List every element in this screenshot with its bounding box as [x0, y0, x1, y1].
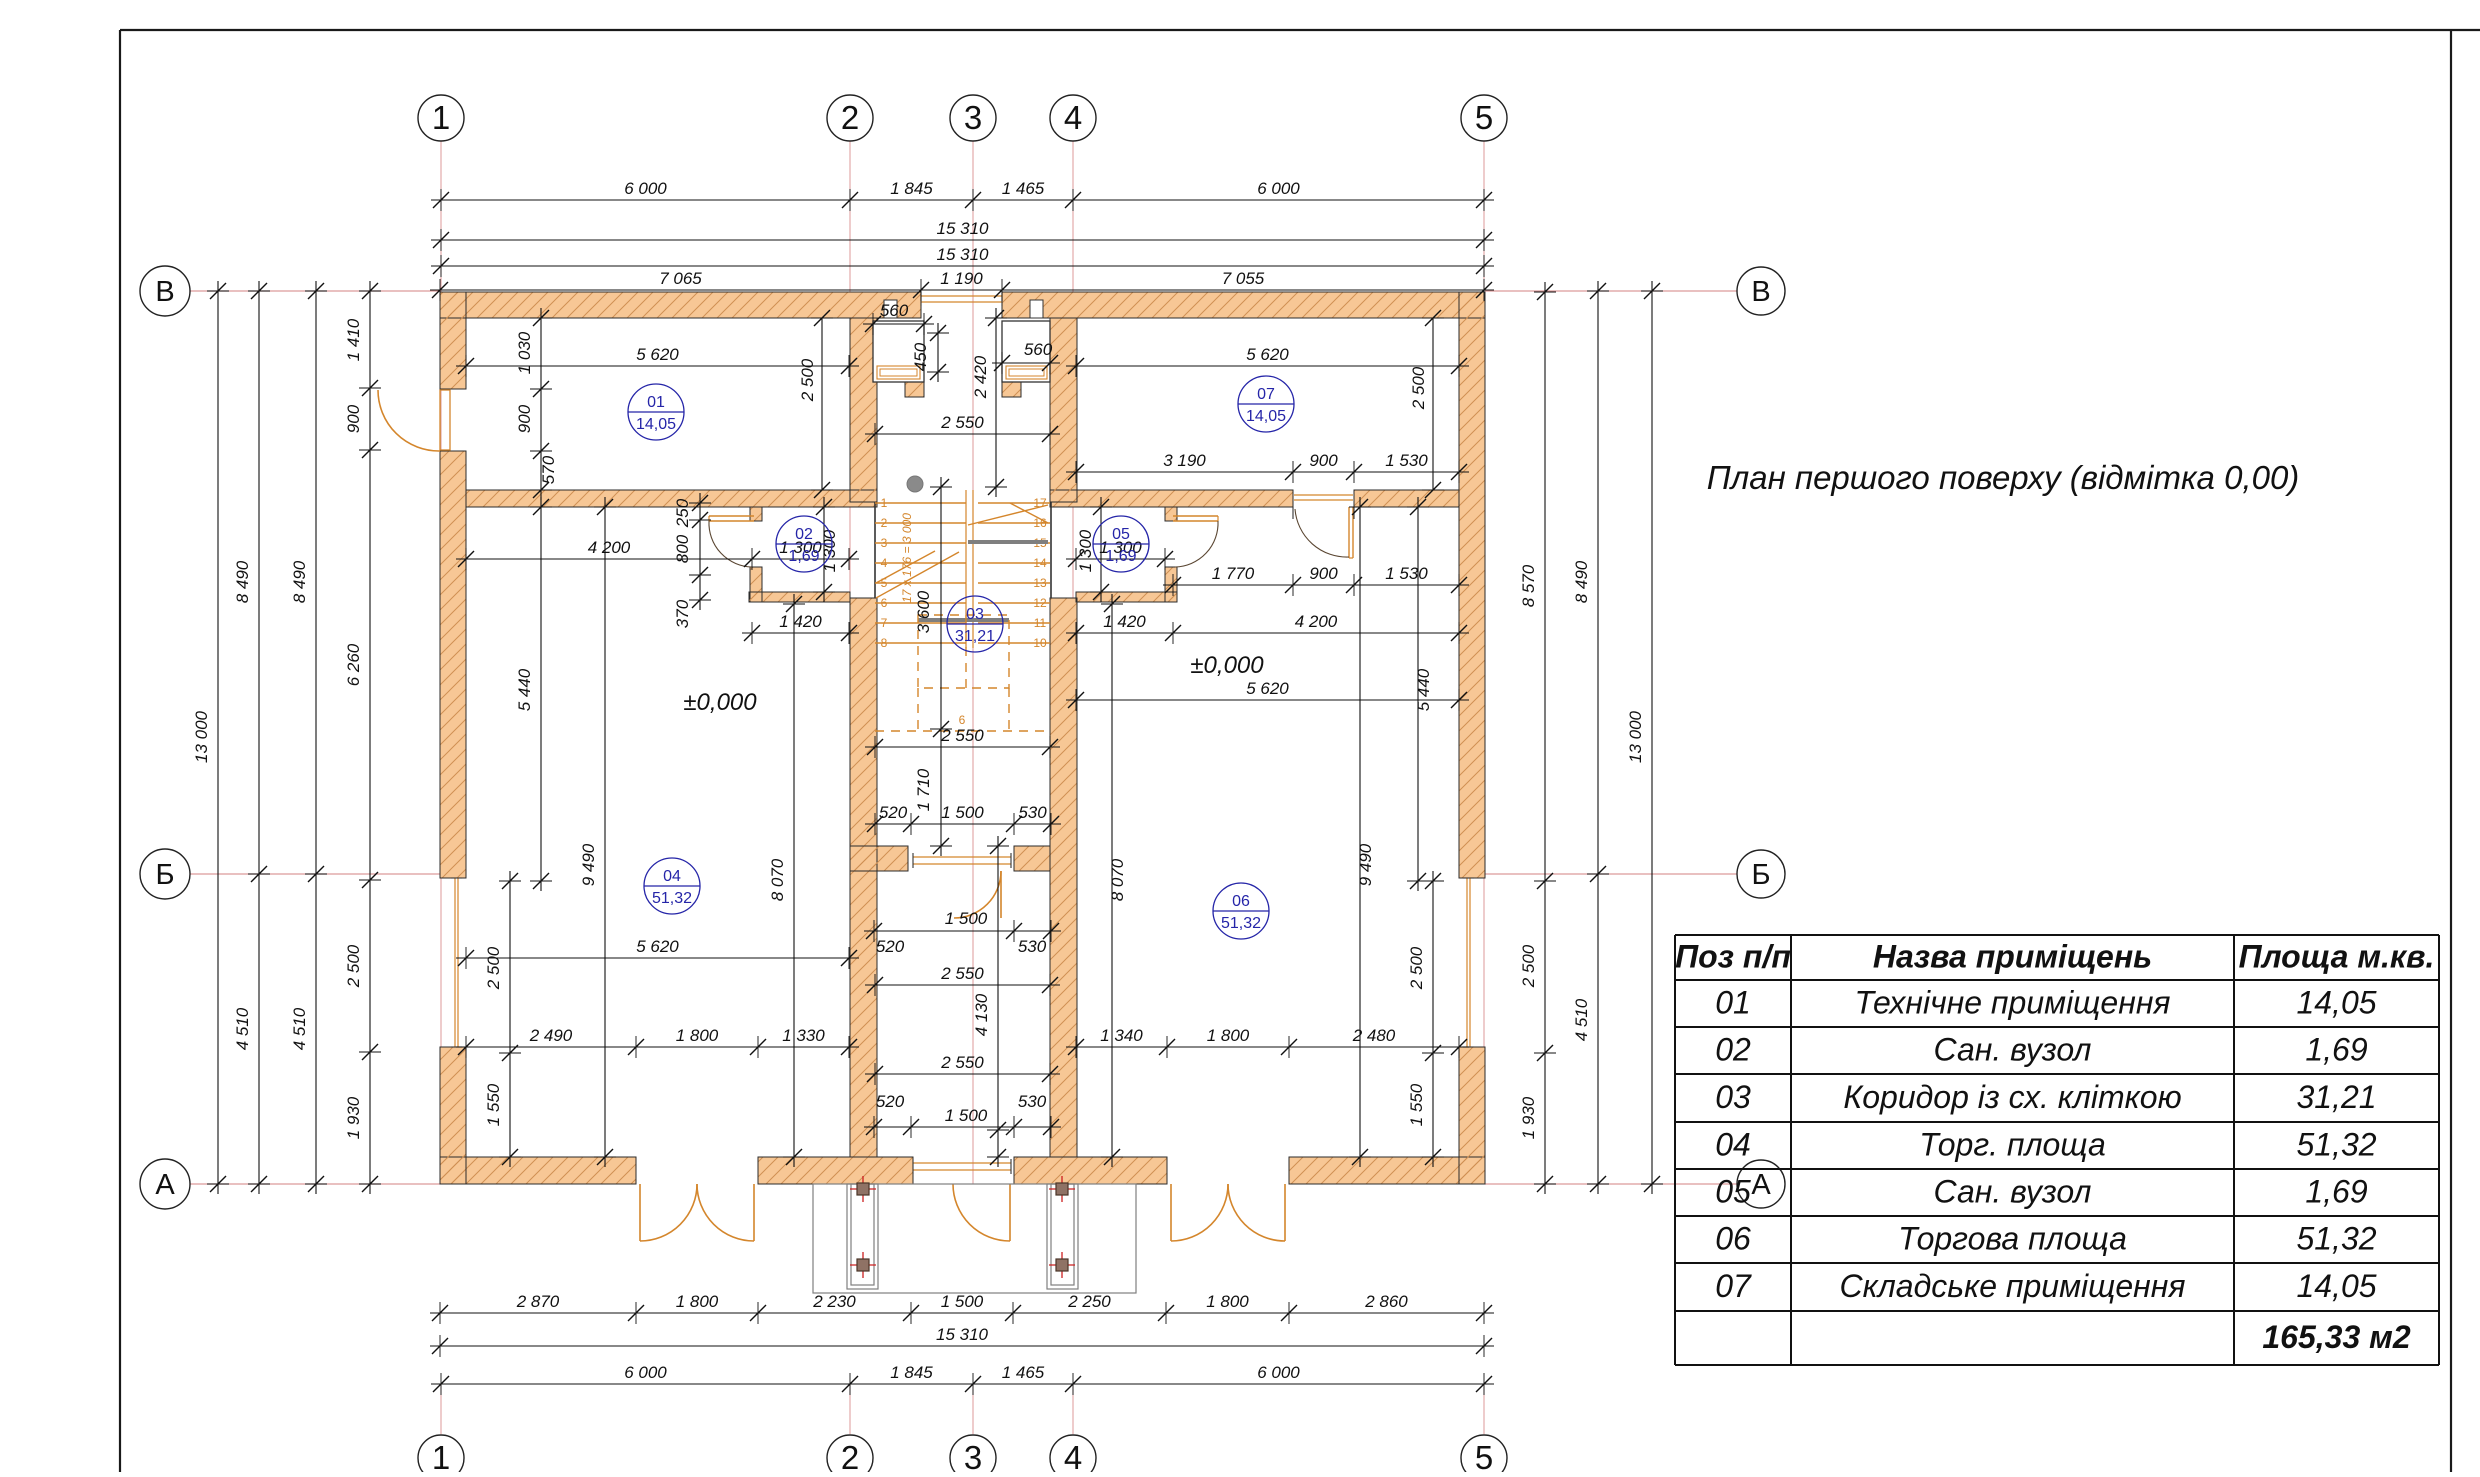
- svg-text:2: 2: [881, 516, 888, 530]
- svg-text:02: 02: [1715, 1032, 1751, 1068]
- svg-text:2 870: 2 870: [516, 1292, 560, 1311]
- svg-text:8 070: 8 070: [1108, 858, 1127, 901]
- svg-text:Торгова площа: Торгова площа: [1898, 1221, 2127, 1257]
- svg-text:51,32: 51,32: [652, 890, 692, 907]
- svg-text:01: 01: [647, 394, 665, 411]
- svg-text:4: 4: [1064, 99, 1082, 136]
- svg-text:1 500: 1 500: [945, 1106, 988, 1125]
- svg-text:6 000: 6 000: [624, 179, 667, 198]
- svg-text:1: 1: [432, 1439, 450, 1472]
- svg-text:8 490: 8 490: [233, 560, 252, 603]
- svg-text:1 465: 1 465: [1002, 179, 1045, 198]
- svg-text:2 500: 2 500: [344, 944, 363, 988]
- svg-text:1 330: 1 330: [782, 1026, 825, 1045]
- svg-text:13 000: 13 000: [192, 710, 211, 763]
- svg-text:Технічне приміщення: Технічне приміщення: [1854, 985, 2170, 1021]
- svg-text:560: 560: [880, 301, 909, 320]
- svg-text:2 250: 2 250: [1067, 1292, 1111, 1311]
- svg-text:1 930: 1 930: [1519, 1096, 1538, 1139]
- svg-text:1 300: 1 300: [1076, 529, 1095, 572]
- svg-text:В: В: [1751, 276, 1770, 308]
- svg-text:15 310: 15 310: [937, 245, 990, 264]
- svg-text:1 420: 1 420: [1103, 612, 1146, 631]
- svg-text:2 500: 2 500: [1409, 366, 1428, 410]
- svg-text:14,05: 14,05: [636, 416, 676, 433]
- svg-text:1 500: 1 500: [941, 1292, 984, 1311]
- svg-text:1 710: 1 710: [914, 768, 933, 811]
- svg-text:1 800: 1 800: [1206, 1292, 1249, 1311]
- svg-text:1 930: 1 930: [344, 1096, 363, 1139]
- svg-text:2 550: 2 550: [940, 964, 984, 983]
- svg-text:±0,000: ±0,000: [683, 689, 757, 716]
- svg-text:165,33 м2: 165,33 м2: [2262, 1319, 2410, 1355]
- svg-text:1 800: 1 800: [1207, 1026, 1250, 1045]
- svg-text:31,21: 31,21: [955, 628, 995, 645]
- svg-text:14,05: 14,05: [1246, 408, 1286, 425]
- svg-text:250: 250: [673, 498, 692, 528]
- svg-text:1,69: 1,69: [2305, 1174, 2367, 1210]
- svg-text:450: 450: [911, 342, 930, 371]
- svg-text:13: 13: [1033, 576, 1047, 590]
- svg-text:Коридор із сх. кліткою: Коридор із сх. кліткою: [1843, 1079, 2181, 1115]
- svg-text:1 550: 1 550: [484, 1083, 503, 1126]
- svg-text:2 480: 2 480: [1352, 1026, 1396, 1045]
- svg-text:Торг. площа: Торг. площа: [1919, 1127, 2105, 1163]
- svg-text:530: 530: [1018, 803, 1047, 822]
- svg-text:План першого поверху (відмітка: План першого поверху (відмітка 0,00): [1707, 459, 2300, 496]
- svg-text:51,32: 51,32: [2296, 1127, 2376, 1163]
- svg-text:5 620: 5 620: [1246, 345, 1289, 364]
- svg-text:13 000: 13 000: [1626, 710, 1645, 763]
- svg-text:1,69: 1,69: [788, 548, 819, 565]
- svg-text:5: 5: [1475, 99, 1493, 136]
- svg-text:17 x 176 = 3 000: 17 x 176 = 3 000: [900, 513, 914, 603]
- svg-text:11: 11: [1034, 616, 1047, 630]
- svg-text:570: 570: [539, 455, 558, 484]
- svg-text:Площа м.кв.: Площа м.кв.: [2239, 939, 2435, 975]
- svg-text:9 490: 9 490: [1356, 843, 1375, 886]
- svg-text:03: 03: [1715, 1079, 1751, 1115]
- svg-text:1 800: 1 800: [676, 1292, 719, 1311]
- svg-text:2: 2: [841, 99, 859, 136]
- svg-text:6 000: 6 000: [1257, 179, 1300, 198]
- svg-text:530: 530: [1018, 1092, 1047, 1111]
- svg-text:800: 800: [673, 534, 692, 563]
- svg-text:Сан. вузол: Сан. вузол: [1934, 1032, 2092, 1068]
- svg-text:1 420: 1 420: [779, 612, 822, 631]
- svg-text:1 410: 1 410: [344, 318, 363, 361]
- svg-text:05: 05: [1112, 526, 1130, 543]
- svg-text:1 550: 1 550: [1407, 1083, 1426, 1126]
- svg-text:07: 07: [1715, 1268, 1752, 1304]
- svg-text:4: 4: [881, 556, 888, 570]
- svg-text:14,05: 14,05: [2296, 1268, 2376, 1304]
- svg-text:±0,000: ±0,000: [1190, 652, 1264, 679]
- svg-text:06: 06: [1232, 893, 1250, 910]
- svg-text:4 130: 4 130: [972, 993, 991, 1036]
- svg-text:8 490: 8 490: [1572, 560, 1591, 603]
- svg-text:900: 900: [515, 404, 534, 433]
- svg-text:520: 520: [876, 937, 905, 956]
- svg-text:2 550: 2 550: [940, 1053, 984, 1072]
- svg-text:51,32: 51,32: [2296, 1221, 2376, 1257]
- svg-text:15 310: 15 310: [937, 219, 990, 238]
- svg-text:А: А: [1751, 1169, 1771, 1201]
- svg-text:8: 8: [881, 636, 888, 650]
- svg-text:06: 06: [1715, 1221, 1751, 1257]
- svg-text:2 490: 2 490: [529, 1026, 573, 1045]
- svg-text:2 230: 2 230: [812, 1292, 856, 1311]
- svg-text:6 000: 6 000: [1257, 1363, 1300, 1382]
- svg-text:14,05: 14,05: [2296, 985, 2376, 1021]
- svg-text:3: 3: [881, 536, 888, 550]
- svg-text:900: 900: [344, 404, 363, 433]
- svg-text:В: В: [155, 276, 174, 308]
- svg-text:04: 04: [1715, 1127, 1751, 1163]
- svg-text:520: 520: [879, 803, 908, 822]
- svg-text:2 500: 2 500: [1519, 944, 1538, 988]
- svg-text:5 440: 5 440: [515, 668, 534, 711]
- svg-text:2 500: 2 500: [484, 946, 503, 990]
- svg-text:4 510: 4 510: [1572, 998, 1591, 1041]
- svg-text:5 620: 5 620: [636, 345, 679, 364]
- svg-text:1: 1: [881, 496, 888, 510]
- svg-text:07: 07: [1257, 386, 1275, 403]
- svg-text:1 530: 1 530: [1385, 451, 1428, 470]
- svg-text:8 490: 8 490: [290, 560, 309, 603]
- svg-text:1 530: 1 530: [1385, 564, 1428, 583]
- svg-text:5 440: 5 440: [1414, 668, 1433, 711]
- svg-text:1 770: 1 770: [1212, 564, 1255, 583]
- svg-text:9 490: 9 490: [579, 843, 598, 886]
- svg-text:31,21: 31,21: [2296, 1079, 2376, 1115]
- svg-text:1: 1: [432, 99, 450, 136]
- svg-text:01: 01: [1715, 985, 1751, 1021]
- svg-text:1 845: 1 845: [890, 179, 933, 198]
- svg-text:А: А: [155, 1169, 175, 1201]
- svg-text:5 620: 5 620: [636, 937, 679, 956]
- svg-text:4: 4: [1064, 1439, 1082, 1472]
- svg-text:2 420: 2 420: [971, 355, 990, 399]
- svg-text:Назва приміщень: Назва приміщень: [1873, 939, 2152, 975]
- svg-text:1 845: 1 845: [890, 1363, 933, 1382]
- svg-text:2 860: 2 860: [1364, 1292, 1408, 1311]
- svg-text:Сан. вузол: Сан. вузол: [1934, 1174, 2092, 1210]
- svg-text:1 500: 1 500: [941, 803, 984, 822]
- svg-text:3 190: 3 190: [1163, 451, 1206, 470]
- svg-text:6: 6: [881, 596, 888, 610]
- svg-text:6: 6: [959, 713, 966, 727]
- svg-text:900: 900: [1309, 564, 1338, 583]
- svg-text:Б: Б: [155, 859, 174, 891]
- svg-text:4 510: 4 510: [290, 1007, 309, 1050]
- svg-text:4 200: 4 200: [1295, 612, 1338, 631]
- svg-text:12: 12: [1033, 596, 1047, 610]
- svg-text:560: 560: [1024, 340, 1053, 359]
- svg-text:530: 530: [1018, 937, 1047, 956]
- svg-text:03: 03: [966, 606, 984, 623]
- svg-text:4 200: 4 200: [588, 538, 631, 557]
- svg-text:1 800: 1 800: [676, 1026, 719, 1045]
- svg-text:3: 3: [964, 99, 982, 136]
- svg-text:2 500: 2 500: [798, 358, 817, 402]
- svg-text:Складське приміщення: Складське приміщення: [1840, 1268, 2186, 1304]
- svg-text:3 600: 3 600: [914, 590, 933, 633]
- svg-text:370: 370: [673, 599, 692, 628]
- svg-text:04: 04: [663, 868, 681, 885]
- svg-text:2 550: 2 550: [940, 413, 984, 432]
- svg-text:5: 5: [1475, 1439, 1493, 1472]
- svg-text:5 620: 5 620: [1246, 679, 1289, 698]
- svg-text:1 030: 1 030: [515, 331, 534, 374]
- svg-text:1 340: 1 340: [1100, 1026, 1143, 1045]
- svg-text:520: 520: [876, 1092, 905, 1111]
- svg-text:1,69: 1,69: [2305, 1032, 2367, 1068]
- svg-text:1,69: 1,69: [1105, 548, 1136, 565]
- svg-text:1 500: 1 500: [945, 909, 988, 928]
- svg-text:2 500: 2 500: [1407, 946, 1426, 990]
- svg-text:Поз п/п: Поз п/п: [1675, 939, 1791, 975]
- svg-text:14: 14: [1033, 556, 1047, 570]
- svg-text:6 260: 6 260: [344, 643, 363, 686]
- svg-text:900: 900: [1309, 451, 1338, 470]
- svg-text:7 065: 7 065: [659, 269, 702, 288]
- svg-text:8 570: 8 570: [1519, 564, 1538, 607]
- svg-text:02: 02: [795, 526, 813, 543]
- svg-text:2 550: 2 550: [940, 726, 984, 745]
- svg-text:10: 10: [1033, 636, 1047, 650]
- svg-text:2: 2: [841, 1439, 859, 1472]
- svg-text:Б: Б: [1751, 859, 1770, 891]
- svg-text:05: 05: [1715, 1174, 1751, 1210]
- svg-text:15 310: 15 310: [936, 1325, 989, 1344]
- svg-text:1 300: 1 300: [820, 529, 839, 572]
- svg-text:51,32: 51,32: [1221, 915, 1261, 932]
- svg-text:3: 3: [964, 1439, 982, 1472]
- svg-text:1 190: 1 190: [940, 269, 983, 288]
- svg-text:7: 7: [881, 616, 888, 630]
- svg-text:6 000: 6 000: [624, 1363, 667, 1382]
- svg-text:7 055: 7 055: [1222, 269, 1265, 288]
- svg-text:4 510: 4 510: [233, 1007, 252, 1050]
- svg-text:1 465: 1 465: [1002, 1363, 1045, 1382]
- svg-text:8 070: 8 070: [768, 858, 787, 901]
